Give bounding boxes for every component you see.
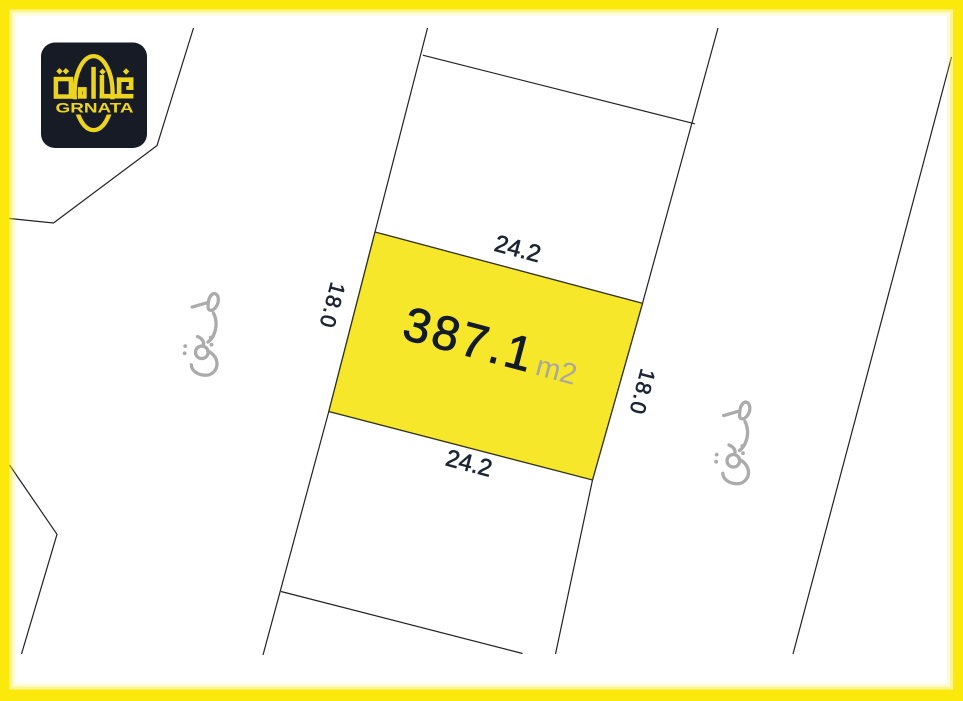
svg-text:GRNATA: GRNATA (56, 101, 134, 116)
